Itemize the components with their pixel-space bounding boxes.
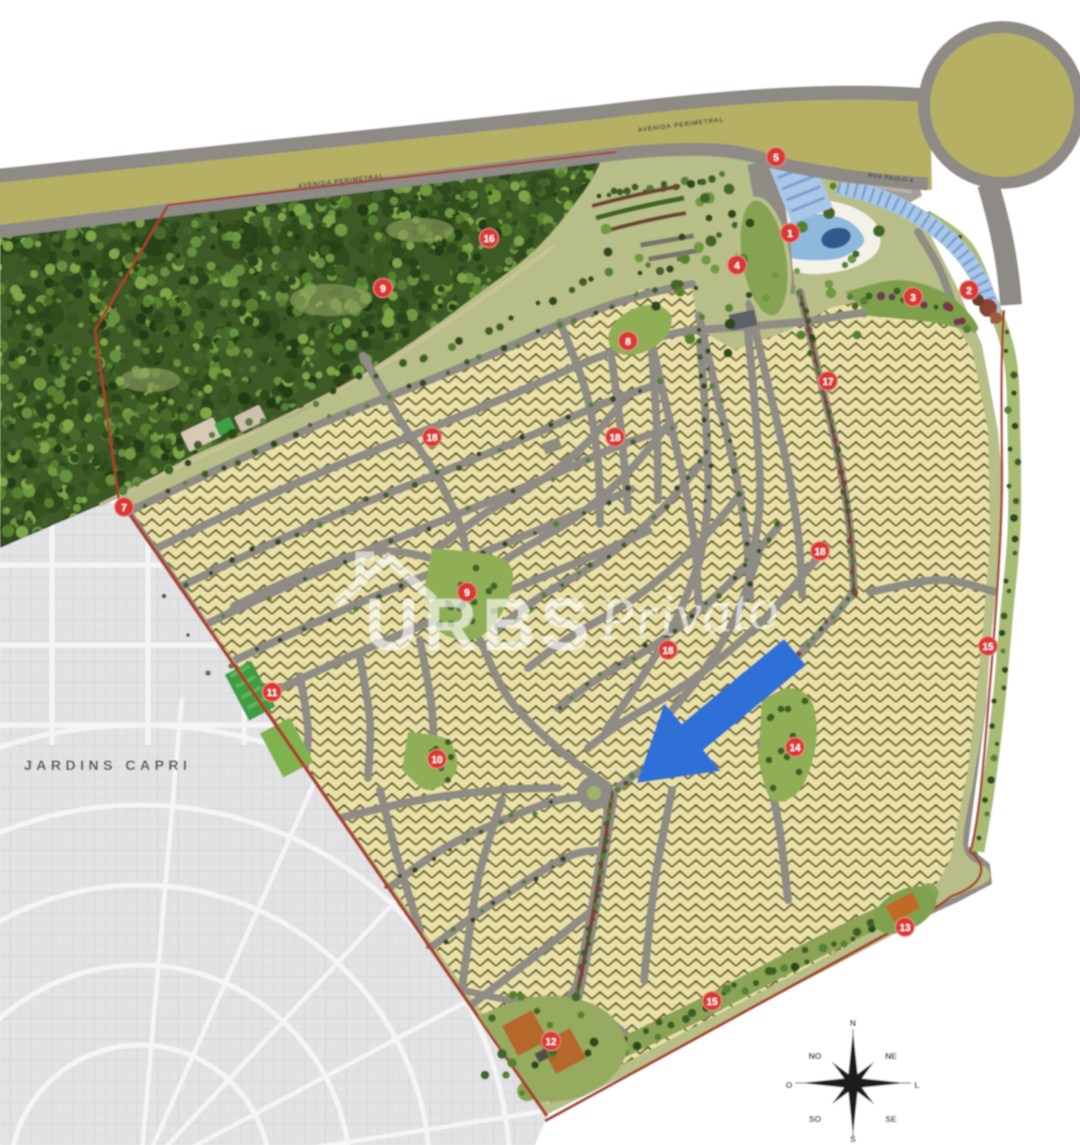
svg-text:N: N: [850, 1018, 856, 1028]
svg-text:13: 13: [899, 923, 911, 934]
svg-text:4: 4: [734, 261, 740, 272]
svg-text:15: 15: [706, 997, 718, 1008]
svg-text:URBS: URBS: [365, 583, 595, 666]
svg-text:11: 11: [267, 688, 278, 699]
svg-text:18: 18: [662, 646, 674, 657]
svg-text:O: O: [786, 1080, 793, 1090]
svg-text:18: 18: [426, 433, 438, 444]
svg-text:1: 1: [787, 229, 793, 240]
svg-text:14: 14: [789, 743, 801, 754]
svg-text:10: 10: [431, 755, 443, 766]
svg-text:9: 9: [464, 588, 470, 599]
svg-text:JARDINS CAPRI: JARDINS CAPRI: [24, 757, 191, 773]
svg-text:16: 16: [483, 234, 495, 245]
svg-text:NE: NE: [885, 1051, 897, 1061]
svg-text:SO: SO: [809, 1114, 822, 1124]
svg-text:17: 17: [822, 377, 834, 388]
svg-text:5: 5: [773, 153, 779, 164]
svg-text:SE: SE: [885, 1114, 897, 1124]
svg-text:L: L: [914, 1080, 919, 1090]
svg-text:S: S: [850, 1134, 856, 1144]
svg-text:15: 15: [982, 642, 994, 653]
svg-text:18: 18: [814, 547, 826, 558]
svg-text:9: 9: [380, 284, 386, 295]
svg-text:3: 3: [910, 293, 916, 304]
svg-text:18: 18: [609, 433, 621, 444]
svg-text:12: 12: [545, 1037, 557, 1048]
svg-text:2: 2: [966, 286, 972, 297]
svg-text:Privato: Privato: [595, 575, 780, 653]
svg-text:NO: NO: [809, 1051, 822, 1061]
svg-text:8: 8: [625, 337, 631, 348]
svg-text:7: 7: [121, 503, 127, 514]
